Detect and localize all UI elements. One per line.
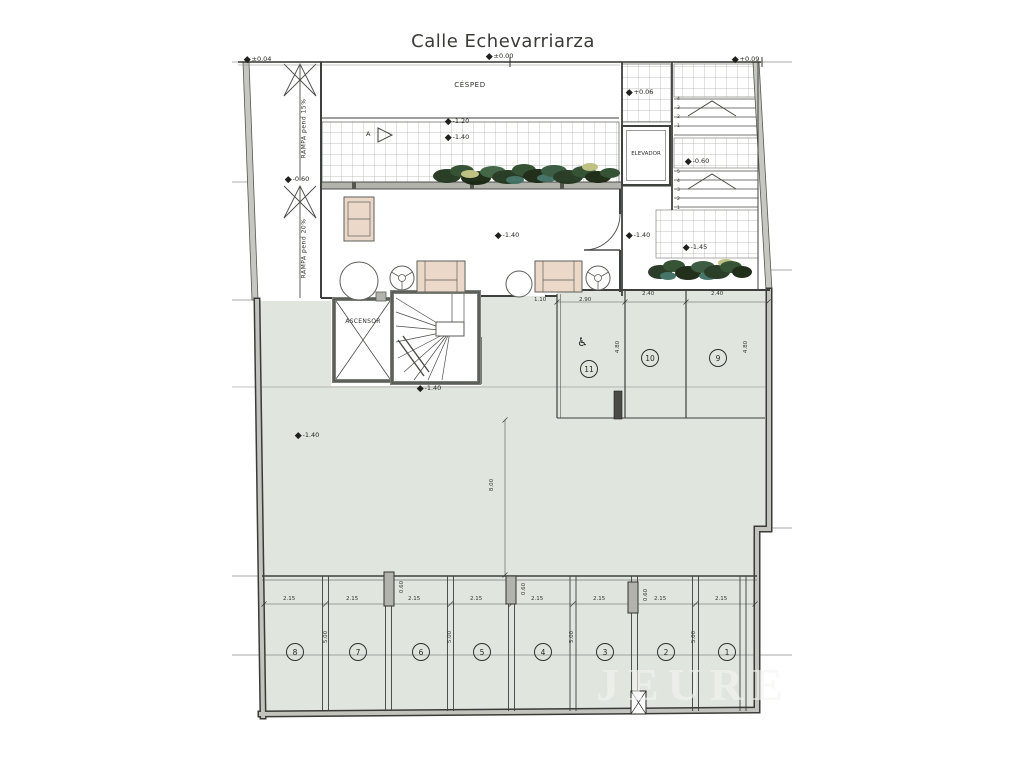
floor-plan-drawing [0,0,1024,768]
tiled-areas [322,64,758,258]
street-title: Calle Echevarriarza [408,31,598,52]
elevator-label: ELEVADOR [622,151,670,157]
ascensor-label: ASCENSOR [334,318,392,325]
ascensor-shaft [334,299,392,381]
lobby-furniture [340,197,610,301]
ramp-lower-label: RAMPA pend 20% [301,204,308,294]
left-upper-boundary [243,62,258,300]
winding-staircase [392,292,479,383]
ramp-upper-label: RAMPA pend 15% [301,84,308,174]
watermark: JEURE [596,658,792,711]
section-marker-label: A [366,130,370,138]
lawn-label: CÉSPED [428,81,512,89]
floor-plan-canvas: Calle Echevarriarza CÉSPED ELEVADOR ASCE… [0,0,1024,768]
wheelchair-icon: ♿ [577,335,588,349]
column [614,391,622,419]
